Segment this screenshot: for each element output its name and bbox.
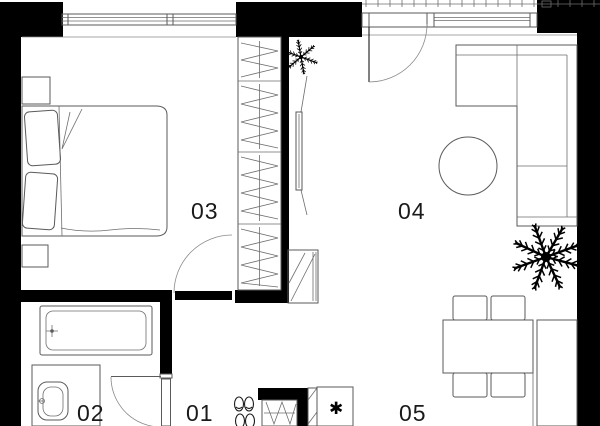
room-label-05: 05 [399, 400, 427, 426]
kitchen-furniture: ✱ [308, 296, 577, 426]
double-bed [22, 106, 167, 236]
floor-plan-svg: ✱ 03 04 02 01 05 [0, 0, 600, 426]
room-label-04: 04 [398, 198, 426, 224]
dining-chair [491, 296, 525, 320]
door-bathroom [111, 374, 172, 426]
pillow [24, 110, 61, 166]
freezer-star-symbol: ✱ [329, 399, 343, 419]
pillow [22, 172, 58, 230]
shoes [235, 397, 255, 426]
kitchen-counter [537, 320, 577, 426]
fridge-freezer: ✱ [317, 387, 353, 426]
plant-large [511, 222, 581, 291]
hall-furniture [235, 397, 298, 426]
dining-chair [453, 373, 487, 397]
living-room-furniture [284, 39, 581, 303]
nightstand [22, 245, 48, 267]
nightstand [22, 77, 50, 104]
bathtub [40, 306, 152, 355]
door-bedroom [174, 235, 232, 300]
hall-closet [262, 400, 297, 426]
floor-plan: ✱ 03 04 02 01 05 [0, 0, 600, 426]
bedroom-furniture [22, 37, 281, 290]
wardrobe [238, 37, 281, 290]
coffee-table [439, 137, 497, 195]
tv [296, 76, 307, 215]
tv-stand [288, 250, 318, 303]
room-label-01: 01 [186, 400, 214, 426]
room-label-03: 03 [191, 198, 219, 224]
sofa [456, 45, 577, 226]
tall-cabinet [308, 388, 317, 426]
room-labels: 03 04 02 01 05 [77, 198, 427, 426]
door-balcony [369, 24, 427, 82]
walls [0, 0, 600, 426]
dining-chair [453, 296, 487, 320]
dining-chair [491, 373, 525, 397]
room-label-02: 02 [77, 400, 105, 426]
washbasin [38, 382, 68, 420]
